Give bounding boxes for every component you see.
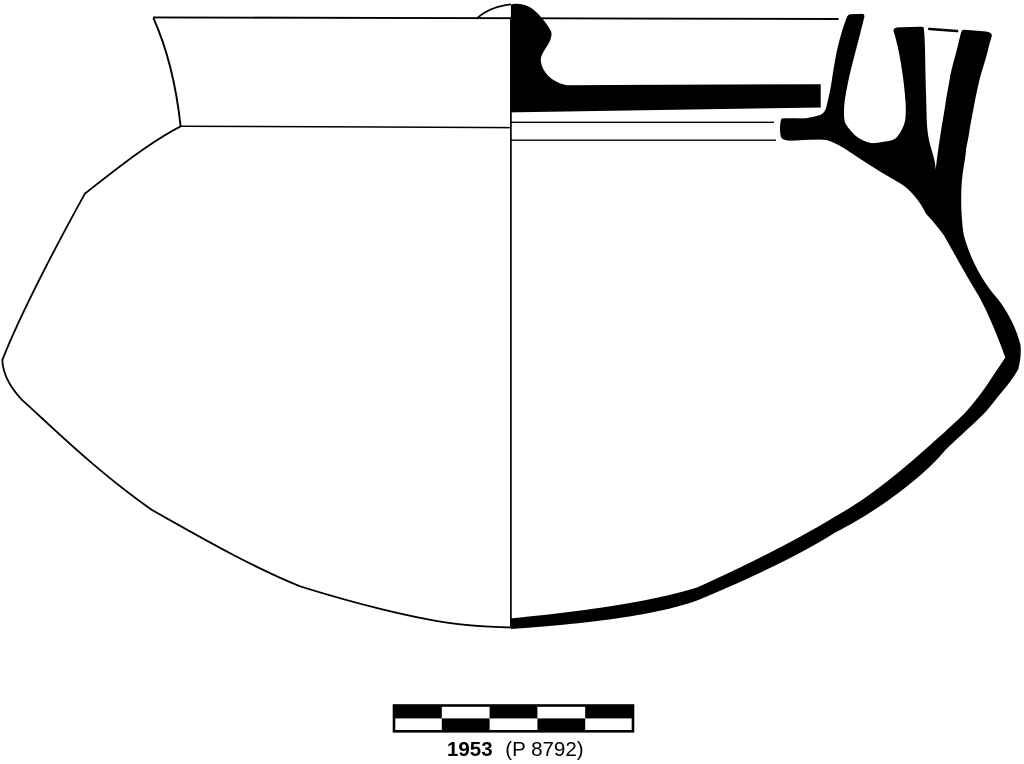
svg-text:1953 (P 8792): 1953 (P 8792) xyxy=(447,738,584,761)
